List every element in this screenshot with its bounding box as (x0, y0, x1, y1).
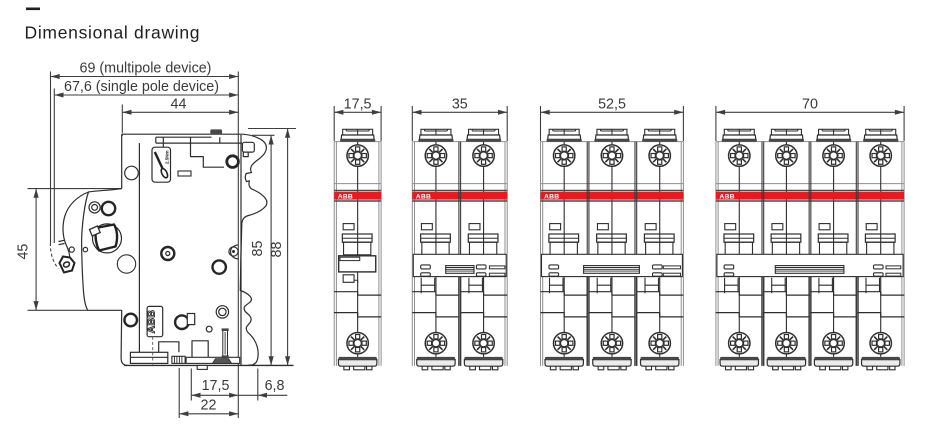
svg-text:ABB: ABB (416, 194, 431, 201)
svg-text:69 (multipole device): 69 (multipole device) (80, 61, 212, 77)
svg-text:ABB: ABB (146, 310, 158, 334)
svg-text:67,6 (single pole device): 67,6 (single pole device) (64, 79, 219, 95)
svg-text:85: 85 (250, 241, 266, 257)
svg-text:45: 45 (15, 244, 31, 260)
svg-text:ABB: ABB (338, 194, 353, 201)
svg-text:22: 22 (201, 398, 217, 414)
svg-text:88: 88 (269, 242, 285, 258)
svg-text:44: 44 (171, 97, 187, 113)
svg-text:17,5: 17,5 (344, 97, 372, 113)
svg-text:ABB: ABB (544, 194, 559, 201)
svg-text:ABB: ABB (719, 194, 734, 201)
svg-text:2.5Nm: 2.5Nm (165, 150, 170, 164)
svg-text:35: 35 (452, 97, 468, 113)
svg-text:70: 70 (802, 97, 818, 113)
svg-text:Dimensional drawing: Dimensional drawing (25, 23, 201, 43)
svg-text:52,5: 52,5 (598, 97, 626, 113)
svg-text:17,5: 17,5 (202, 378, 230, 394)
svg-text:6,8: 6,8 (265, 378, 285, 394)
